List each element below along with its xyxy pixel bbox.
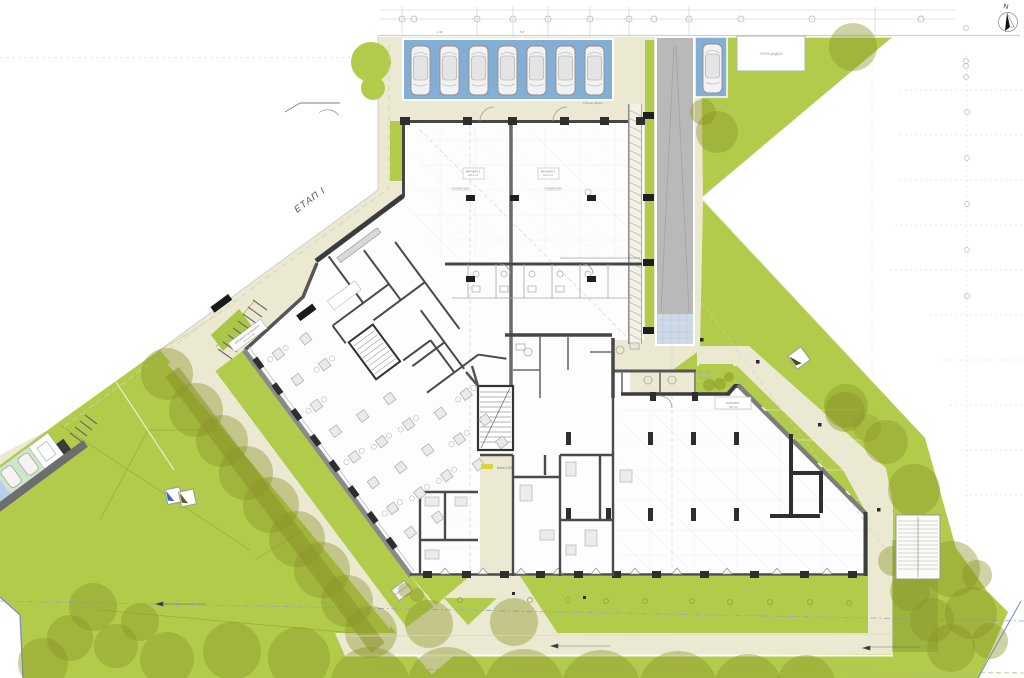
svg-text:5.8: 5.8 [520,30,525,34]
svg-text:700 m2: 700 m2 [728,405,738,409]
svg-text:Кота 0.00: Кота 0.00 [497,466,512,470]
svg-text:МАГАЗИН 1: МАГАЗИН 1 [466,170,481,174]
svg-text:складова зона: складова зона [544,187,562,190]
svg-text:2.40: 2.40 [437,30,443,34]
svg-text:189.6 m2: 189.6 m2 [543,174,554,177]
svg-text:196.2 m2: 196.2 m2 [468,174,479,177]
svg-text:Уличен фронт: Уличен фронт [583,101,603,105]
svg-text:ПЛОЩАДКА: ПЛОЩАДКА [760,51,783,56]
svg-text:търговска зона: търговска зона [451,187,470,190]
svg-text:МАГАЗИН 2: МАГАЗИН 2 [541,170,556,174]
